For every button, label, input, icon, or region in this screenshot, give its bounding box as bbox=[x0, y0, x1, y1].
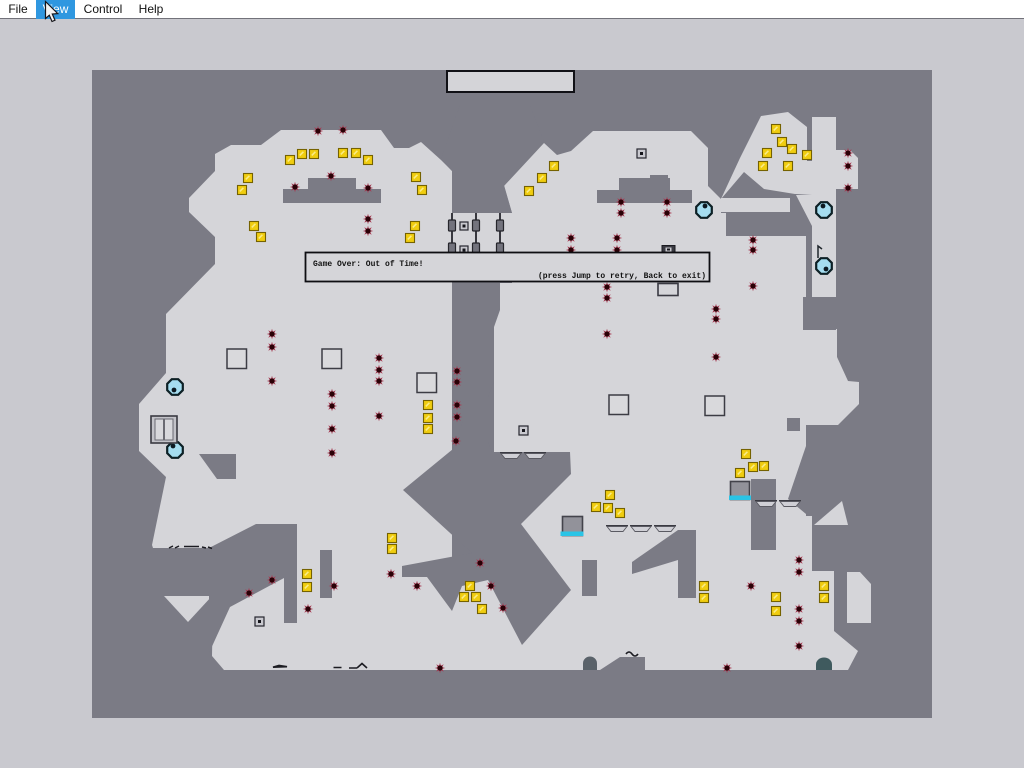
svg-text:Game Over: Out of Time!: Game Over: Out of Time! bbox=[313, 260, 423, 269]
svg-text:(press Jump to retry, Back to: (press Jump to retry, Back to exit) bbox=[538, 272, 706, 281]
